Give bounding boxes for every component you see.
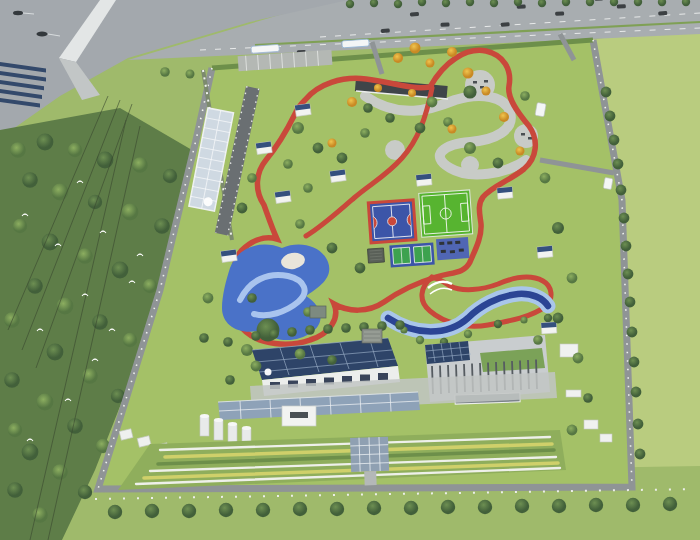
- shuttle-bus: [251, 44, 279, 53]
- fitness-area: [436, 237, 469, 260]
- tennis-courts: [389, 243, 434, 268]
- park-aerial-rendering: [0, 0, 700, 540]
- bus: [342, 39, 369, 48]
- court-shed: [368, 248, 385, 263]
- gray-shed: [362, 329, 382, 343]
- plaza-circle: [461, 156, 479, 174]
- soccer-field: [419, 190, 473, 237]
- kiosk-window: [290, 412, 308, 418]
- sun-glint: [265, 369, 272, 376]
- gray-shed: [310, 306, 326, 318]
- plant-roof-solar: [425, 341, 470, 364]
- rendering-canvas: [0, 0, 700, 540]
- basketball-court: [368, 200, 416, 243]
